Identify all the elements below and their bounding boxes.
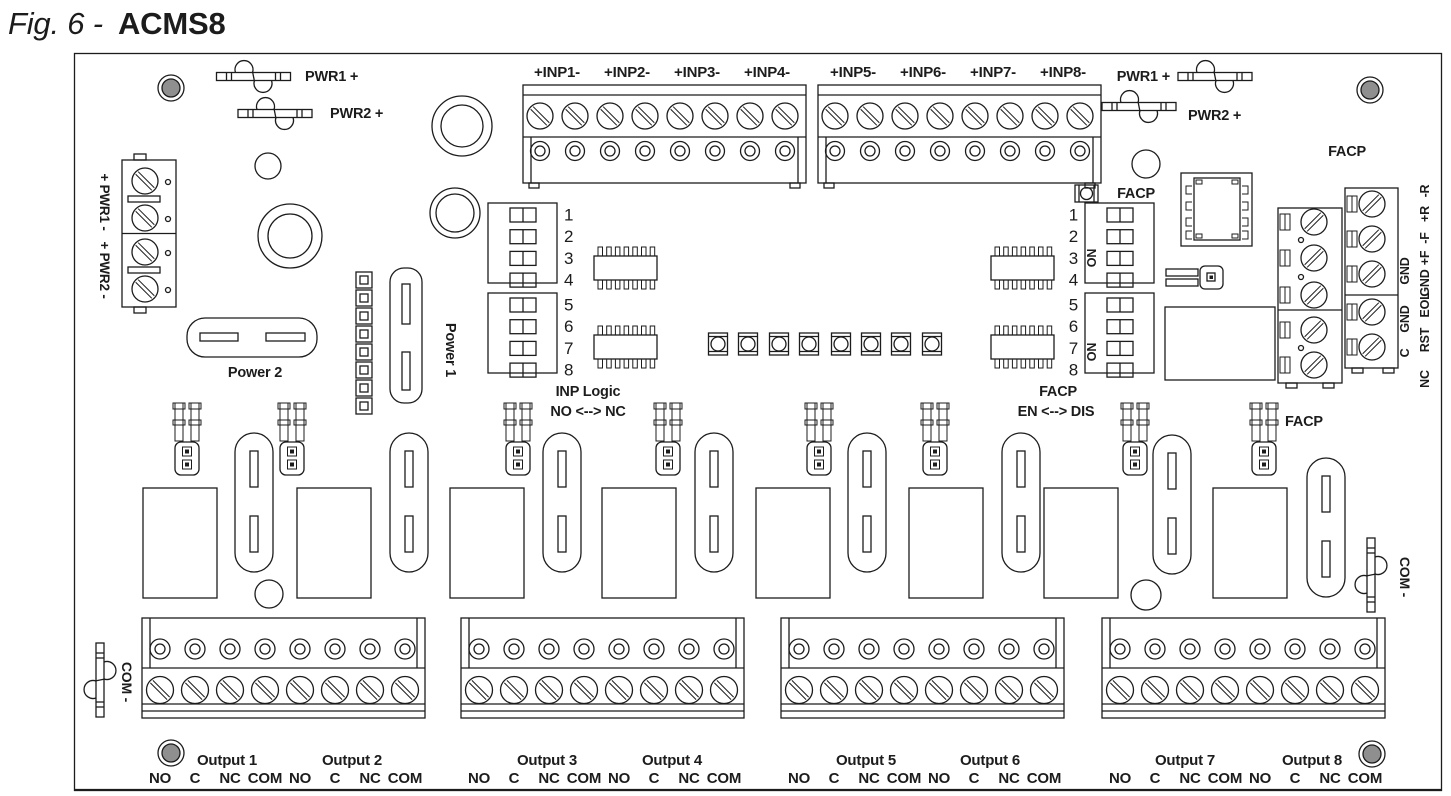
screw-terminal [1067, 103, 1093, 129]
header-pin [356, 308, 372, 324]
screw-terminal [1107, 677, 1134, 704]
wire-hole [1250, 639, 1270, 659]
wire-hole [741, 142, 760, 161]
com-label-right: COM - [1397, 557, 1413, 598]
wire-hole [714, 639, 734, 659]
screw-terminal [997, 103, 1023, 129]
relay [1213, 488, 1287, 598]
capsule-component [235, 433, 273, 572]
header-pin [356, 290, 372, 306]
dip-number: 4 [564, 271, 573, 290]
wire-hole [574, 639, 594, 659]
screw-terminal [1142, 677, 1169, 704]
edge-pin-label: GND [1398, 257, 1412, 284]
board-labels: Fig. 6 - ACMS8 PWR1 + PWR2 + PWR1 + PWR2… [8, 6, 1413, 703]
wire-hole [504, 639, 524, 659]
pin-header-8 [356, 272, 372, 414]
jumper [1250, 403, 1278, 475]
fuse-label-pwr2-right: PWR2 + [1188, 108, 1241, 124]
header-pin [356, 398, 372, 414]
jumper [1121, 403, 1149, 475]
dip-number: 7 [1069, 339, 1078, 358]
wire-hole [1001, 142, 1020, 161]
input-label: +INP4- [744, 64, 790, 81]
led-row [709, 185, 1099, 355]
vent-hole [430, 188, 480, 238]
screw-terminal [597, 103, 623, 129]
screw-terminal [392, 677, 419, 704]
output-terminal-label: NO [149, 770, 172, 787]
output-terminal-label: C [1290, 770, 1301, 787]
screw-terminal [1317, 677, 1344, 704]
dip-switch-block: 5678 [1069, 293, 1154, 380]
wire-hole [601, 142, 620, 161]
screw-terminal [927, 103, 953, 129]
power2-label: Power 2 [228, 365, 282, 381]
header-pin [356, 272, 372, 288]
output-name-label: Output 3 [517, 752, 577, 769]
screw-terminal [1301, 352, 1327, 378]
screw-terminal [641, 677, 668, 704]
screw-terminal [711, 677, 738, 704]
wire-hole [644, 639, 664, 659]
screw-terminal [1301, 282, 1327, 308]
wire-hole [1036, 142, 1055, 161]
wire-hole [999, 639, 1019, 659]
relay [143, 488, 217, 598]
ic-chips [594, 247, 1054, 368]
vent-hole [255, 580, 283, 608]
output-terminal-label: COM [567, 770, 601, 787]
screw-terminal [562, 103, 588, 129]
input-terminal-block [523, 85, 806, 183]
fuse-label-pwr2-left: PWR2 + [330, 106, 383, 122]
output-terminal-label: NO [928, 770, 951, 787]
facp-dip-label: FACP [1117, 186, 1155, 202]
screw-terminal [1352, 677, 1379, 704]
output-terminal-label: NO [1249, 770, 1272, 787]
output-terminal-label: NC [1179, 770, 1201, 787]
power1-socket [390, 268, 422, 403]
wire-hole [894, 639, 914, 659]
power1-connector [390, 268, 422, 403]
wire-hole [1071, 142, 1090, 161]
screw-terminal [1031, 677, 1058, 704]
fuse-symbol [1355, 538, 1387, 612]
header-pin [356, 380, 372, 396]
wire-hole [1110, 639, 1130, 659]
output-terminal-label: NO [1109, 770, 1132, 787]
output-name-label: Output 5 [836, 752, 896, 769]
screw-terminal [667, 103, 693, 129]
screw-terminal [132, 239, 158, 265]
wire-hole [636, 142, 655, 161]
output-terminal-label: NC [858, 770, 880, 787]
output-terminal-label: NO [468, 770, 491, 787]
edge-pin-label: C [1398, 348, 1412, 357]
screw-terminal [252, 677, 279, 704]
screw-terminal [322, 677, 349, 704]
screw-terminal [132, 205, 158, 231]
edge-pin-label: +F [1418, 250, 1432, 265]
wire-hole [929, 639, 949, 659]
wire-hole [255, 639, 275, 659]
wire-hole [966, 142, 985, 161]
output-terminal-label: C [1150, 770, 1161, 787]
dip-number: 7 [564, 339, 573, 358]
screw-terminal [501, 677, 528, 704]
edge-pin-label: -F [1418, 232, 1432, 244]
output-terminal-label: C [509, 770, 520, 787]
screw-terminal [147, 677, 174, 704]
output-terminal-label: NO [788, 770, 811, 787]
pwr2-vertical-label: + PWR2 - [97, 241, 112, 298]
relay [909, 488, 983, 598]
input-label: +INP6- [900, 64, 946, 81]
edge-pin-label: NC [1418, 370, 1432, 388]
edge-pin-label: +R [1418, 206, 1432, 222]
output-terminal-label: C [330, 770, 341, 787]
header-pin [356, 326, 372, 342]
output-name-label: Output 7 [1155, 752, 1215, 769]
screw-terminal [1032, 103, 1058, 129]
ic-chip [594, 256, 657, 280]
screw-terminal [1301, 317, 1327, 343]
acms8-board-diagram: +INP1-+INP2-+INP3-+INP4-+INP5-+INP6-+INP… [0, 0, 1451, 796]
output-terminal-label: NC [219, 770, 241, 787]
output-terminal-label: NC [538, 770, 560, 787]
output-terminal-label: NC [678, 770, 700, 787]
input-terminal-block [818, 85, 1101, 183]
output-terminal-label: NO [289, 770, 312, 787]
wire-hole [1320, 639, 1340, 659]
wire-hole [931, 142, 950, 161]
dip-number: 3 [1069, 249, 1078, 268]
screw-terminal [822, 103, 848, 129]
screw-terminal [1282, 677, 1309, 704]
facp-caption-2: EN <--> DIS [1018, 404, 1095, 420]
relay [602, 488, 676, 598]
dip-on-label-2: ON [1085, 343, 1099, 362]
screw-terminal [466, 677, 493, 704]
screw-terminal [632, 103, 658, 129]
output-terminal-label: COM [1027, 770, 1061, 787]
facp-corner-label: FACP [1328, 144, 1366, 160]
ic-chip [991, 335, 1054, 359]
output-terminal-label: NC [998, 770, 1020, 787]
output-terminal-label: C [829, 770, 840, 787]
screw-terminal [961, 677, 988, 704]
wire-hole [539, 639, 559, 659]
wire-hole [826, 142, 845, 161]
relay [756, 488, 830, 598]
wire-hole [679, 639, 699, 659]
wire-hole [964, 639, 984, 659]
screw-terminal [737, 103, 763, 129]
jumper [654, 403, 682, 475]
input-label: +INP7- [970, 64, 1016, 81]
edge-pin-label: GND [1398, 305, 1412, 332]
dip-number: 6 [1069, 317, 1078, 336]
output-terminal-label: NO [608, 770, 631, 787]
fuse-symbol [217, 61, 291, 93]
output-terminal-label: C [969, 770, 980, 787]
output-name-label: Output 1 [197, 752, 257, 769]
capsule-component [543, 433, 581, 572]
output-terminal-label: C [649, 770, 660, 787]
screw-terminal [217, 677, 244, 704]
vent-hole [1132, 150, 1160, 178]
relay [450, 488, 524, 598]
output-terminal-label: COM [1348, 770, 1382, 787]
wire-hole [185, 639, 205, 659]
screw-terminal [536, 677, 563, 704]
dip-number: 5 [1069, 296, 1078, 315]
dip-number: 1 [1069, 206, 1078, 225]
dip-number: 3 [564, 249, 573, 268]
wire-hole [469, 639, 489, 659]
screw-terminal [926, 677, 953, 704]
screw-terminal [132, 276, 158, 302]
output-terminal-label: COM [1208, 770, 1242, 787]
dip-number: 6 [564, 317, 573, 336]
wire-hole [1034, 639, 1054, 659]
output-terminal-label: COM [707, 770, 741, 787]
facp-area [1165, 173, 1275, 380]
wire-hole [609, 639, 629, 659]
wire-hole [325, 639, 345, 659]
screw-terminal [857, 103, 883, 129]
jumper-horizontal [1166, 269, 1198, 276]
input-terminal-blocks: +INP1-+INP2-+INP3-+INP4-+INP5-+INP6-+INP… [523, 64, 1101, 188]
header-pin [356, 344, 372, 360]
wire-hole [1215, 639, 1235, 659]
output-terminal-label: C [190, 770, 201, 787]
ic-chip [594, 335, 657, 359]
capsule-component [848, 433, 886, 572]
power2-socket [187, 318, 317, 357]
wire-hole [776, 142, 795, 161]
screw-terminal [891, 677, 918, 704]
screw-terminal [1301, 209, 1327, 235]
dip-number: 4 [1069, 271, 1078, 290]
wire-hole [671, 142, 690, 161]
dip-number: 2 [1069, 227, 1078, 246]
screw-terminal [702, 103, 728, 129]
jumper [173, 403, 201, 475]
screw-terminal [786, 677, 813, 704]
fuse-symbol [84, 643, 116, 717]
output-name-label: Output 2 [322, 752, 382, 769]
screw-terminal [821, 677, 848, 704]
right-terminal-blocks: -R+R-F+FGNDEOLRSTNCGNDGNDC [1278, 184, 1432, 388]
wire-hole [859, 639, 879, 659]
dip-number: 8 [564, 361, 573, 380]
dip-switch-block: 5678 [488, 293, 573, 380]
pwr-terminal-block [122, 154, 176, 313]
screw-terminal [1301, 245, 1327, 271]
screw-terminal [962, 103, 988, 129]
figure-title-name: ACMS8 [118, 6, 226, 41]
wire-hole [861, 142, 880, 161]
dip-number: 1 [564, 206, 573, 225]
screw-terminal [527, 103, 553, 129]
output-terminal-label: COM [248, 770, 282, 787]
dip-number: 8 [1069, 361, 1078, 380]
relay [1044, 488, 1118, 598]
capsules [235, 433, 1345, 597]
screw-terminal [1359, 334, 1385, 360]
wire-hole [531, 142, 550, 161]
wire-hole [566, 142, 585, 161]
capsule-component [1002, 433, 1040, 572]
relays [143, 488, 1287, 598]
ic-chip [991, 256, 1054, 280]
wire-hole [1355, 639, 1375, 659]
wire-hole [789, 639, 809, 659]
screw-terminal [856, 677, 883, 704]
facp-relay [1165, 307, 1275, 380]
vent-hole [255, 153, 281, 179]
input-label: +INP2- [604, 64, 650, 81]
dip-switch-block: 1234 [488, 203, 573, 290]
edge-pin-label: RST [1418, 327, 1432, 352]
jumper [921, 403, 949, 475]
facp-caption: FACP [1039, 384, 1077, 400]
screw-terminal [1212, 677, 1239, 704]
wire-hole [360, 639, 380, 659]
output-name-label: Output 4 [642, 752, 703, 769]
fuse-label-pwr1-left: PWR1 + [305, 69, 358, 85]
jumper-headers [173, 403, 1278, 475]
output-terminal-blocks: NOCNCCOMNOCNCCOMNOCNCCOMNOCNCCOMNOCNCCOM… [142, 618, 1385, 787]
screw-terminal [996, 677, 1023, 704]
dip-on-label-1: ON [1085, 249, 1099, 268]
wire-hole [290, 639, 310, 659]
wire-hole [1285, 639, 1305, 659]
screw-terminal [1359, 261, 1385, 287]
screw-terminal [772, 103, 798, 129]
pwr1-vertical-label: + PWR1 - [97, 173, 112, 230]
board-artwork: +INP1-+INP2-+INP3-+INP4-+INP5-+INP6-+INP… [74, 54, 1442, 791]
com-label-left: COM - [119, 662, 135, 703]
output-terminal-label: COM [388, 770, 422, 787]
output-name-label: Output 8 [1282, 752, 1342, 769]
facp-jumper-label: FACP [1285, 414, 1323, 430]
output-terminal-label: COM [887, 770, 921, 787]
wire-hole [150, 639, 170, 659]
wire-hole [824, 639, 844, 659]
output-name-label: Output 6 [960, 752, 1020, 769]
screw-terminal [892, 103, 918, 129]
capsule-component [1153, 435, 1191, 574]
board-outline [74, 54, 1442, 791]
screw-terminal [357, 677, 384, 704]
capsule-component [1307, 458, 1345, 597]
dip-number: 5 [564, 296, 573, 315]
power1-label: Power 1 [442, 323, 458, 377]
wire-hole [706, 142, 725, 161]
screw-terminal [1359, 226, 1385, 252]
header-pin [356, 362, 372, 378]
vent-hole [1131, 580, 1161, 610]
output-terminal-label: NC [359, 770, 381, 787]
input-label: +INP1- [534, 64, 580, 81]
screw-terminal [571, 677, 598, 704]
screw-terminal [182, 677, 209, 704]
relay [297, 488, 371, 598]
jumper [504, 403, 532, 475]
power2-connector [187, 318, 317, 357]
input-label: +INP3- [674, 64, 720, 81]
screw-terminal [287, 677, 314, 704]
screw-terminal [132, 168, 158, 194]
fuse-symbol [238, 98, 312, 130]
edge-terminal-block [1345, 188, 1398, 368]
figure-title-prefix: Fig. 6 - [8, 6, 103, 41]
jumper [278, 403, 306, 475]
input-label: +INP5- [830, 64, 876, 81]
screw-terminal [1359, 191, 1385, 217]
wire-hole [896, 142, 915, 161]
inp-logic-caption-2: NO <--> NC [550, 404, 626, 420]
wire-hole [1145, 639, 1165, 659]
capsule-component [390, 433, 428, 572]
wire-hole [220, 639, 240, 659]
edge-pin-label: EOL [1418, 292, 1432, 318]
screw-terminal [1359, 299, 1385, 325]
dip-switch-block: 1234 [1069, 203, 1154, 290]
jumper [805, 403, 833, 475]
screw-terminal [676, 677, 703, 704]
figure-page: +INP1-+INP2-+INP3-+INP4-+INP5-+INP6-+INP… [0, 0, 1451, 796]
screw-terminal [1247, 677, 1274, 704]
fuse-label-pwr1-right: PWR1 + [1117, 69, 1170, 85]
wire-hole [1180, 639, 1200, 659]
output-terminal-label: NC [1319, 770, 1341, 787]
screw-terminal [1177, 677, 1204, 704]
screw-terminal [606, 677, 633, 704]
dip-number: 2 [564, 227, 573, 246]
capsule-component [695, 433, 733, 572]
fuse-symbol [1178, 61, 1252, 93]
edge-pin-label: -R [1418, 184, 1432, 197]
inp-logic-caption: INP Logic [556, 384, 621, 400]
wire-hole [395, 639, 415, 659]
input-label: +INP8- [1040, 64, 1086, 81]
mounting-holes [158, 75, 1385, 767]
fuse-symbol [1102, 91, 1176, 123]
